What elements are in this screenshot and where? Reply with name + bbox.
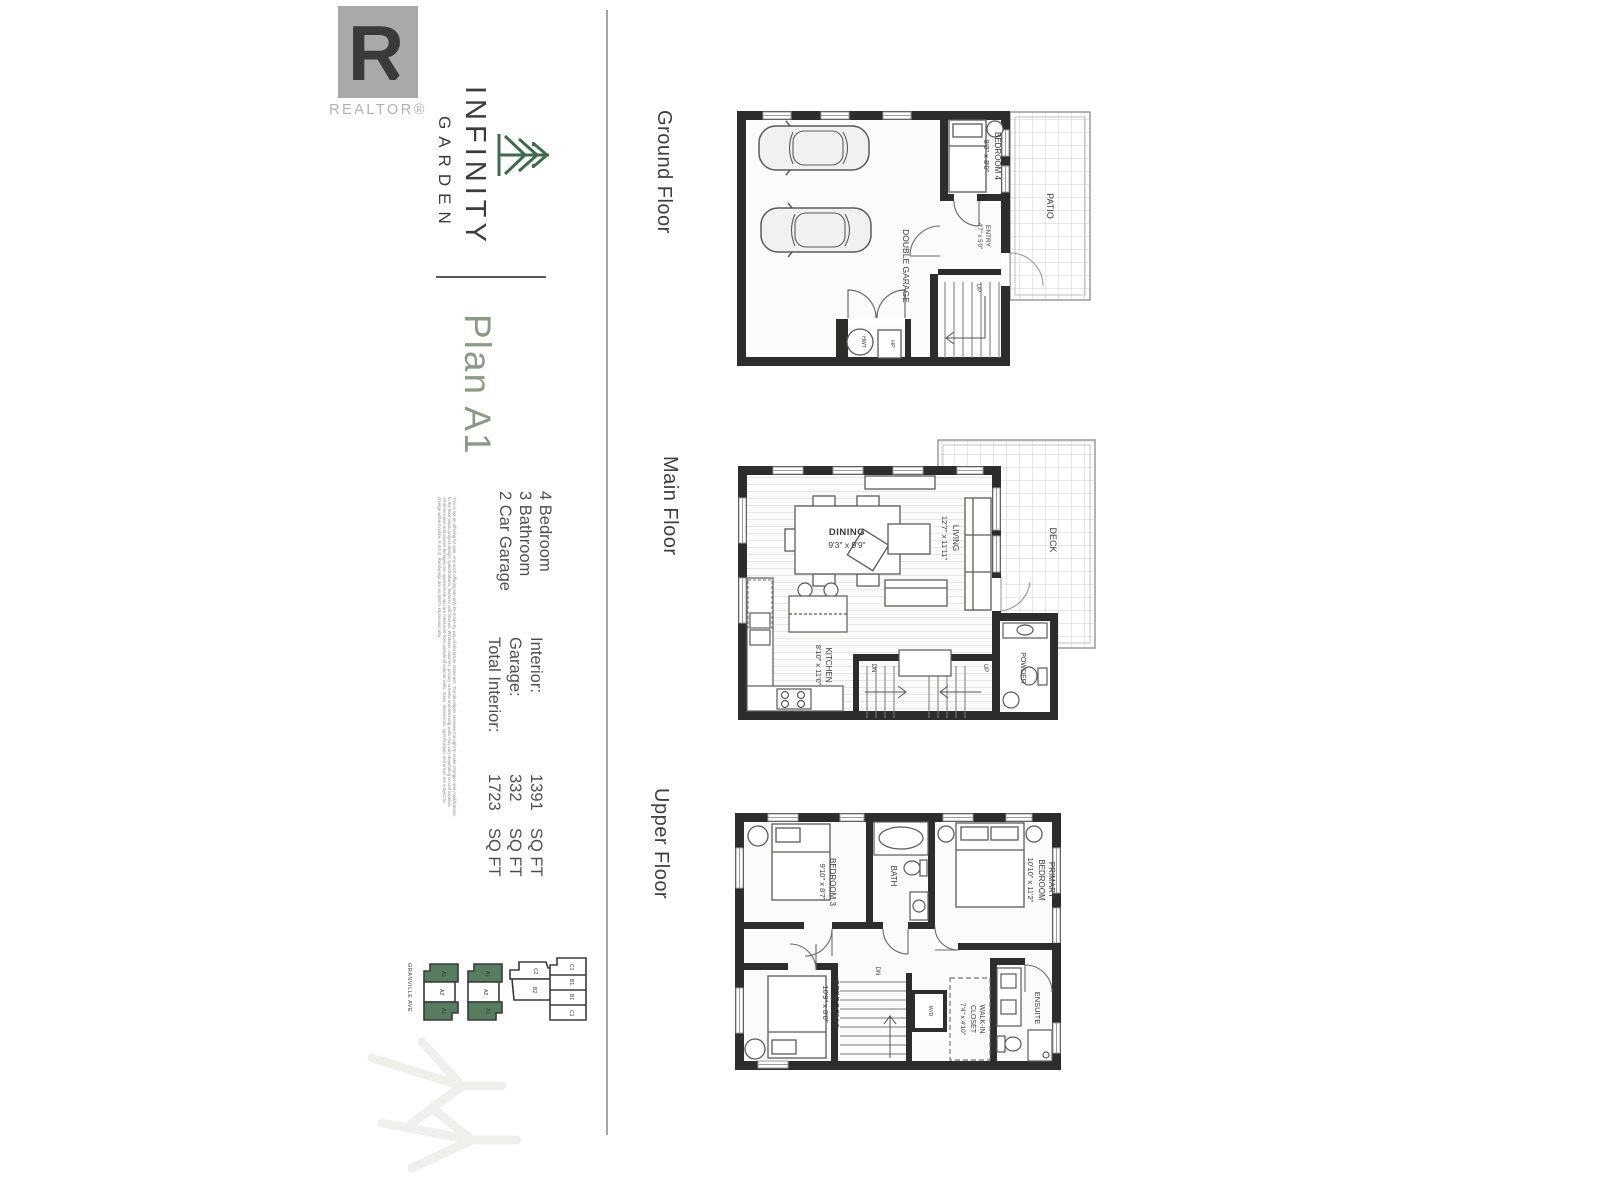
site-building-2: A1 A2 A1 [468, 964, 502, 1020]
site-key-plan: GRANVILLE AVE A1 A2 A1 A1 A2 A1 C2 B2 C1… [398, 950, 598, 1030]
floor-plan-ground: DOUBLE GARAGE BEDROOM 4 8'0" x 8'0" ENTR… [733, 106, 1095, 372]
hp-label: HP [889, 340, 895, 348]
unit-label: B1 [568, 979, 574, 985]
realtor-label: REALTOR® [326, 102, 430, 118]
area-unit: SQ FT [526, 828, 545, 877]
stool [824, 583, 838, 597]
side-table [748, 826, 768, 846]
disclaimer-line: This is not an offering for sale. Any su… [452, 497, 457, 816]
room-dims-walkin: 7'4" x 4'10" [959, 1003, 966, 1036]
room-label-walkin-1: WALK-IN [978, 1005, 985, 1034]
area-unit: SQ FT [505, 828, 524, 877]
hwt-label: HWT [860, 336, 866, 347]
floor-plan-main: DINING 9'3" x 9'9" LIVING 12'7" x 11'11"… [733, 428, 1101, 746]
powder-sink [1003, 692, 1019, 708]
room-label-living: LIVING [951, 525, 960, 551]
stool [798, 583, 812, 597]
toilet-tank [1038, 668, 1047, 685]
toilet-tank [920, 860, 927, 876]
unit-label: C1 [568, 1010, 574, 1017]
feature-bedrooms: 4 Bedroom [534, 491, 554, 591]
feature-garage: 2 Car Garage [494, 491, 514, 591]
feature-bathrooms: 3 Bathroom [514, 491, 534, 591]
room-dims-bedroom3: 9'10" x 8'7" [818, 864, 827, 901]
realtor-logo: R [336, 6, 420, 102]
room-label-dining: DINING [829, 527, 865, 538]
unit-label: B2 [531, 987, 537, 993]
area-label: Total Interior: [484, 637, 503, 732]
area-row-total: Total Interior: 1723 SQ FT [484, 637, 505, 857]
room-dims-bedroom4: 8'0" x 8'0" [982, 140, 991, 173]
room-dims-kitchen: 8'10" x 11'0" [814, 645, 823, 686]
disclaimer: This is not an offering for sale. Any su… [437, 497, 457, 816]
plan-title: Plan A1 [456, 314, 498, 456]
room-label-primary-2: BEDROOM [1037, 859, 1046, 901]
brand-divider [436, 276, 546, 278]
area-table: Interior: 1391 SQ FT Garage: 332 SQ FT T… [484, 637, 547, 857]
room-label-bedroom3: BEDROOM 3 [828, 858, 837, 907]
area-unit: SQ FT [484, 828, 503, 877]
loveseat [885, 580, 947, 606]
unit-label: B1 [568, 994, 574, 1000]
area-value: 1723 [484, 774, 503, 811]
unit-label: A1 [484, 971, 490, 977]
toilet-bowl [904, 861, 920, 875]
area-value: 332 [505, 774, 524, 802]
floor-label-ground: Ground Floor [652, 110, 675, 234]
unit-label: A1 [440, 971, 446, 977]
feature-list: 4 Bedroom 3 Bathroom 2 Car Garage [494, 491, 554, 591]
room-label-patio: PATIO [1045, 193, 1055, 219]
site-building-3: C2 B2 [510, 962, 554, 1000]
room-label-powder: POWDER [1019, 652, 1026, 684]
floor-label-main: Main Floor [658, 456, 681, 555]
unit-label: C1 [568, 964, 574, 971]
floor-label-upper: Upper Floor [649, 788, 672, 899]
unit-label: A1 [484, 1008, 490, 1014]
island [789, 596, 847, 632]
area-row-interior: Interior: 1391 SQ FT [526, 637, 547, 857]
room-label-bedroom4: BEDROOM 4 [993, 132, 1002, 181]
brochure-page: { "brand": { "logo_letter": "R", "realto… [0, 0, 1600, 1200]
site-building-4: C1 B1 B1 C1 [550, 958, 586, 1020]
room-dims-primary: 10'10" x 11'2" [1026, 858, 1035, 903]
area-label: Interior: [526, 637, 545, 693]
room-label-bedroom2: BEDROOM 2 [831, 980, 840, 1029]
room-label-entry: ENTRY [984, 225, 991, 248]
unit-label: A1 [440, 1008, 446, 1014]
wd-label: W/D [927, 1006, 933, 1017]
sink [750, 613, 770, 628]
room-label-walkin-2: CLOSET [969, 1005, 976, 1034]
unit-label: A2 [438, 989, 444, 995]
site-building-1: A1 A2 A1 [424, 964, 458, 1020]
stairs-up-label: UP [975, 284, 981, 292]
nightstand [938, 826, 954, 842]
room-dims-dining: 9'3" x 9'9" [828, 540, 865, 550]
area-row-garage: Garage: 332 SQ FT [505, 637, 526, 857]
sofa [965, 498, 991, 610]
unit-label: A2 [482, 989, 488, 995]
room-label-deck: DECK [1048, 527, 1058, 552]
toilet-tank [997, 1036, 1005, 1052]
panel-divider [606, 10, 608, 1135]
stairs-up-label: UP [982, 664, 988, 672]
tv-console [865, 476, 935, 489]
room-dims-entry: 4'7" x 5'0" [976, 223, 982, 249]
coffee-table [888, 524, 930, 554]
brand-name-garden: GARDEN [434, 116, 454, 231]
side-table [745, 1039, 765, 1059]
stair-landing [899, 650, 951, 676]
pine-tree-icon [494, 125, 560, 185]
brand-name-infinity: INFINITY [458, 86, 491, 247]
toilet-bowl [1005, 1037, 1021, 1051]
watermark-tree-icon [352, 1028, 542, 1178]
stairs-dn-label: DN [874, 967, 880, 976]
car-2 [761, 203, 871, 257]
room-label-primary-1: PRIMARY [1047, 862, 1056, 899]
room-label-kitchen: KITCHEN [824, 647, 833, 682]
area-value: 1391 [526, 774, 545, 811]
floor-plan-upper: BEDROOM 3 9'10" x 8'7" BATH PRIMARY BEDR… [728, 808, 1070, 1080]
room-label-bath: BATH [889, 866, 898, 887]
nightstand [1026, 826, 1042, 842]
car-1 [759, 121, 869, 175]
room-dims-bedroom2: 10'9" x 8'0" [821, 986, 830, 1023]
unit-label: C2 [532, 968, 538, 975]
hot-water-tank [847, 329, 873, 355]
street-label: GRANVILLE AVE [406, 963, 412, 1012]
area-label: Garage: [505, 637, 524, 697]
room-label-ensuite: ENSUITE [1033, 992, 1042, 1025]
room-label-double-garage: DOUBLE GARAGE [901, 229, 911, 303]
stairs-dn-label: DN [870, 664, 876, 673]
room-dims-living: 12'7" x 11'11" [940, 516, 949, 561]
